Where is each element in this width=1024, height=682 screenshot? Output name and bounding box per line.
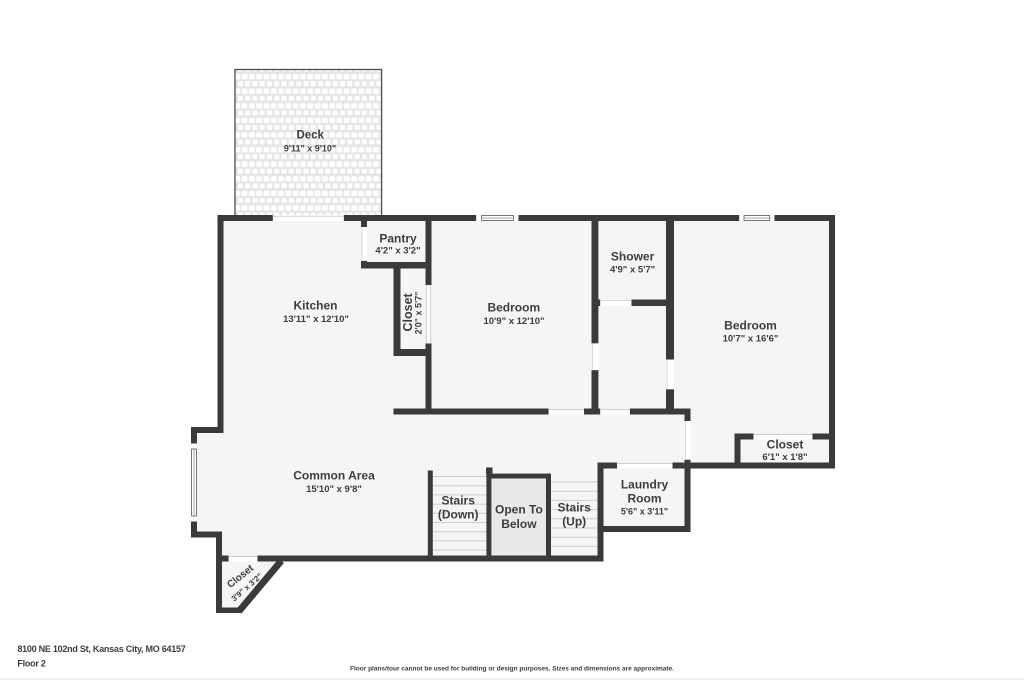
svg-text:Bedroom: Bedroom bbox=[487, 301, 540, 315]
svg-text:2'0" x 5'7": 2'0" x 5'7" bbox=[414, 292, 424, 335]
svg-text:Stairs: Stairs bbox=[442, 494, 476, 508]
svg-text:(Down): (Down) bbox=[438, 508, 479, 522]
svg-text:Stairs: Stairs bbox=[558, 501, 592, 515]
svg-text:Floor 2: Floor 2 bbox=[17, 659, 45, 669]
svg-text:Pantry: Pantry bbox=[379, 231, 417, 245]
svg-text:8100 NE 102nd St, Kansas City,: 8100 NE 102nd St, Kansas City, MO 64157 bbox=[17, 644, 185, 654]
svg-text:Laundry: Laundry bbox=[621, 478, 669, 492]
svg-text:5'6" x 3'11": 5'6" x 3'11" bbox=[621, 507, 668, 517]
svg-text:Room: Room bbox=[628, 492, 662, 506]
svg-text:4'9" x 5'7": 4'9" x 5'7" bbox=[610, 264, 655, 275]
svg-text:10'9" x 12'10": 10'9" x 12'10" bbox=[483, 316, 544, 327]
svg-text:Bedroom: Bedroom bbox=[724, 318, 777, 332]
svg-text:15'10" x 9'8": 15'10" x 9'8" bbox=[306, 484, 362, 495]
svg-text:Kitchen: Kitchen bbox=[293, 299, 337, 313]
svg-text:Open To: Open To bbox=[495, 503, 543, 517]
svg-text:13'11" x 12'10": 13'11" x 12'10" bbox=[283, 314, 349, 325]
svg-text:10'7" x 16'6": 10'7" x 16'6" bbox=[723, 333, 779, 344]
svg-text:Floor plans/tour cannot be use: Floor plans/tour cannot be used for buil… bbox=[350, 666, 674, 673]
svg-text:4'2" x 3'2": 4'2" x 3'2" bbox=[375, 246, 420, 257]
svg-text:Deck: Deck bbox=[296, 130, 324, 142]
svg-text:(Up): (Up) bbox=[562, 515, 586, 529]
svg-text:6'1" x 1'8": 6'1" x 1'8" bbox=[762, 452, 807, 463]
svg-text:Common Area: Common Area bbox=[293, 468, 375, 482]
svg-text:9'11" x 9'10": 9'11" x 9'10" bbox=[284, 143, 336, 153]
svg-text:Below: Below bbox=[501, 517, 537, 531]
svg-text:Shower: Shower bbox=[611, 250, 655, 264]
svg-text:Closet: Closet bbox=[767, 438, 804, 452]
